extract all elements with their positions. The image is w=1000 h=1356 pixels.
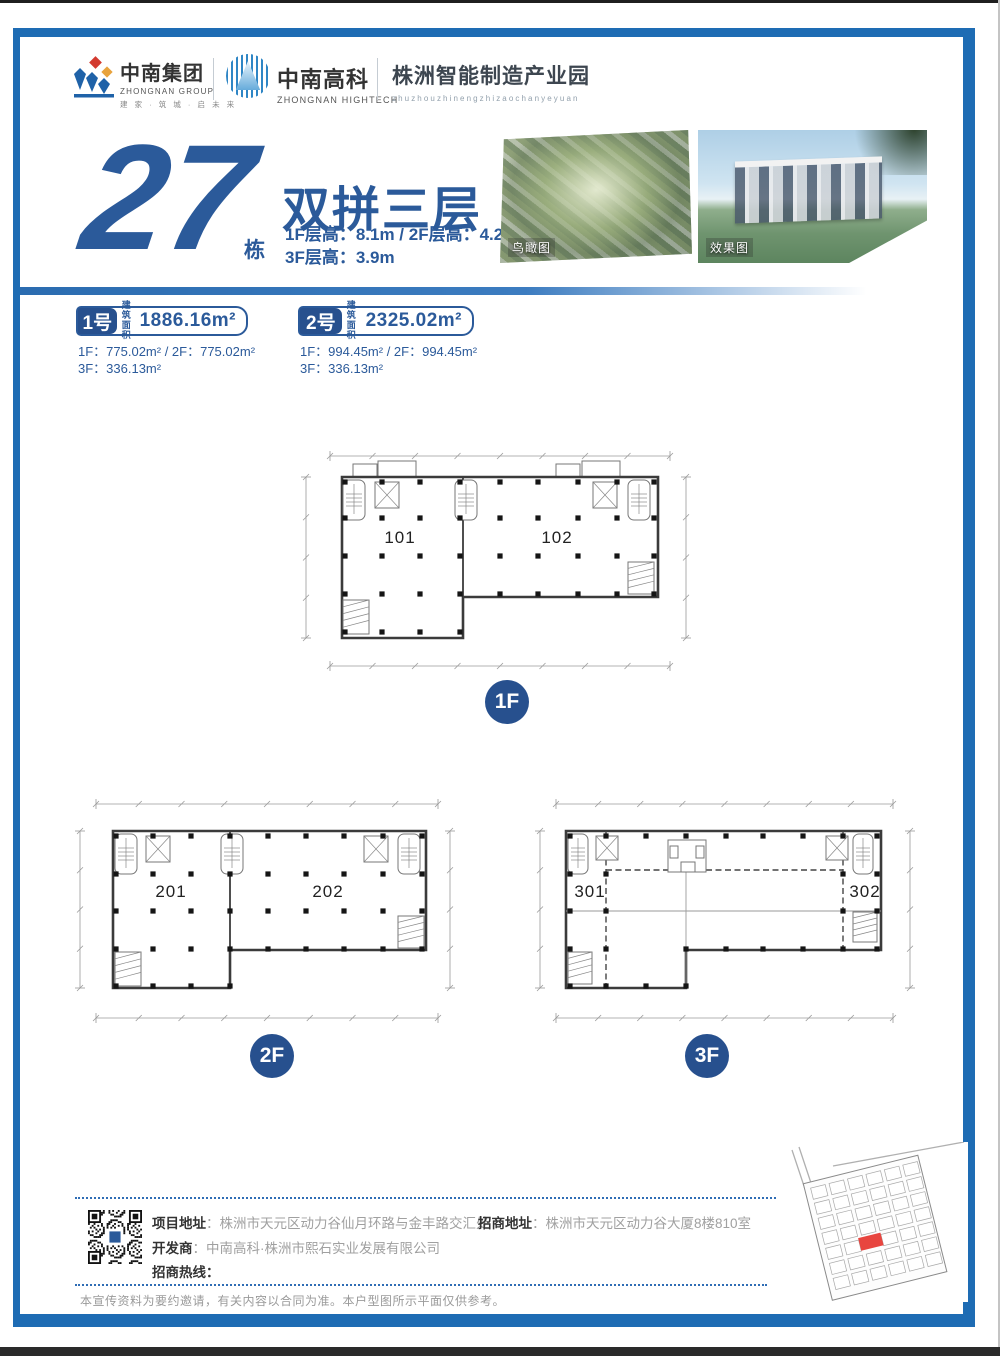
floor-badge-1f: 1F [485, 680, 529, 724]
hotline-label: 招商热线： [152, 1265, 220, 1280]
unit-2-badge: 2号 [300, 308, 342, 334]
unit-2-floor-areas-2: 3F：336.13m² [300, 358, 383, 377]
footer-divider-bottom [75, 1284, 767, 1286]
developer-row: 开发商：中南高科·株洲市熙石实业发展有限公司 [152, 1237, 440, 1258]
building-number: 27 [74, 122, 262, 272]
zhongnan-hightech-logo-icon [226, 54, 270, 98]
floor-heights-line2: 3F层高：3.9m [285, 243, 395, 268]
group-tagline: 建 家 · 筑 城 · 启 未 来 [120, 99, 237, 110]
zhongnan-hightech-logo-text: 中南高科 ZHONGNAN HIGHTECH [277, 62, 398, 105]
section-divider-bar [20, 287, 940, 295]
room-label-102: 102 [541, 528, 572, 547]
floor-heights-line1: 1F层高：8.1m / 2F层高：4.2m [285, 220, 518, 245]
developer-value: ：中南高科·株洲市熙石实业发展有限公司 [193, 1241, 441, 1256]
hightech-name: 中南高科 [277, 62, 398, 94]
room-label-202: 202 [312, 882, 343, 901]
developer-label: 开发商 [152, 1241, 193, 1256]
render-photo-label: 效果图 [706, 238, 753, 257]
floorplan-2f: 201 202 [66, 788, 466, 1028]
unit-1-badge: 1号 [78, 308, 117, 334]
room-label-301: 301 [574, 882, 605, 901]
project-address-value: ：株洲市天元区动力谷仙月环路与金丰路交汇处 [206, 1216, 490, 1231]
aerial-photo: 鸟瞰图 [500, 130, 692, 263]
logo-divider-2 [377, 58, 378, 100]
building-number-suffix: 栋 [244, 234, 265, 264]
park-title: 株洲智能制造产业园 [392, 60, 590, 90]
site-map [778, 1142, 968, 1302]
unit-1-floor-areas-2: 3F：336.13m² [78, 358, 161, 377]
page-top-edge [0, 0, 1000, 3]
flyer-page: 中南集团 ZHONGNAN GROUP 建 家 · 筑 城 · 启 未 来 中南… [0, 0, 1000, 1356]
floorplan-1f: 101 102 [290, 442, 710, 677]
area-word-top: 建筑 [122, 301, 135, 321]
unit-1-area-words: 建筑 面积 [117, 308, 140, 334]
park-pinyin: zhuzhouzhinengzhizaochanyeyuan [392, 94, 590, 103]
project-address-label: 项目地址 [152, 1216, 206, 1231]
floor-badge-3f: 3F [685, 1034, 729, 1078]
page-bottom-edge [0, 1347, 1000, 1356]
mountain-glyph [236, 61, 261, 90]
hightech-name-en: ZHONGNAN HIGHTECH [277, 95, 398, 105]
aerial-photo-label: 鸟瞰图 [508, 238, 555, 257]
area-word-top: 建筑 [347, 301, 361, 321]
room-label-101: 101 [384, 528, 415, 547]
floorplan-3f: 301 302 [528, 788, 948, 1028]
leasing-address-value: ：株洲市天元区动力谷大厦8楼810室 [532, 1216, 751, 1231]
logo-divider-1 [213, 58, 214, 100]
unit-2-total-area: 2325.02m² [366, 308, 472, 334]
room-label-201: 201 [155, 882, 186, 901]
group-name: 中南集团 [120, 57, 237, 86]
room-label-302: 302 [849, 882, 880, 901]
unit-card-1: 1号 建筑 面积 1886.16m² [76, 306, 248, 336]
leasing-address-label: 招商地址 [478, 1216, 532, 1231]
hotline-row: 招商热线： [152, 1261, 220, 1282]
building-illustration [735, 157, 882, 224]
leasing-address-row: 招商地址：株洲市天元区动力谷大厦8楼810室 [478, 1212, 751, 1233]
unit-1-total-area: 1886.16m² [140, 308, 246, 334]
area-word-bottom: 面积 [122, 321, 135, 341]
zhongnan-group-logo-icon [72, 56, 116, 100]
site-map-drawing [778, 1142, 968, 1302]
qr-code [88, 1209, 142, 1265]
area-word-bottom: 面积 [347, 321, 361, 341]
project-address-row: 项目地址：株洲市天元区动力谷仙月环路与金丰路交汇处 [152, 1212, 490, 1233]
floor-badge-2f: 2F [250, 1034, 294, 1078]
park-title-block: 株洲智能制造产业园 zhuzhouzhinengzhizaochanyeyuan [392, 60, 590, 103]
zhongnan-group-logo-text: 中南集团 ZHONGNAN GROUP 建 家 · 筑 城 · 启 未 来 [120, 57, 237, 110]
group-name-en: ZHONGNAN GROUP [120, 87, 237, 96]
disclaimer-text: 本宣传资料为要约邀请，有关内容以合同为准。本户型图所示平面仅供参考。 [80, 1292, 505, 1309]
unit-card-2: 2号 建筑 面积 2325.02m² [298, 306, 474, 336]
unit-2-area-words: 建筑 面积 [342, 308, 366, 334]
